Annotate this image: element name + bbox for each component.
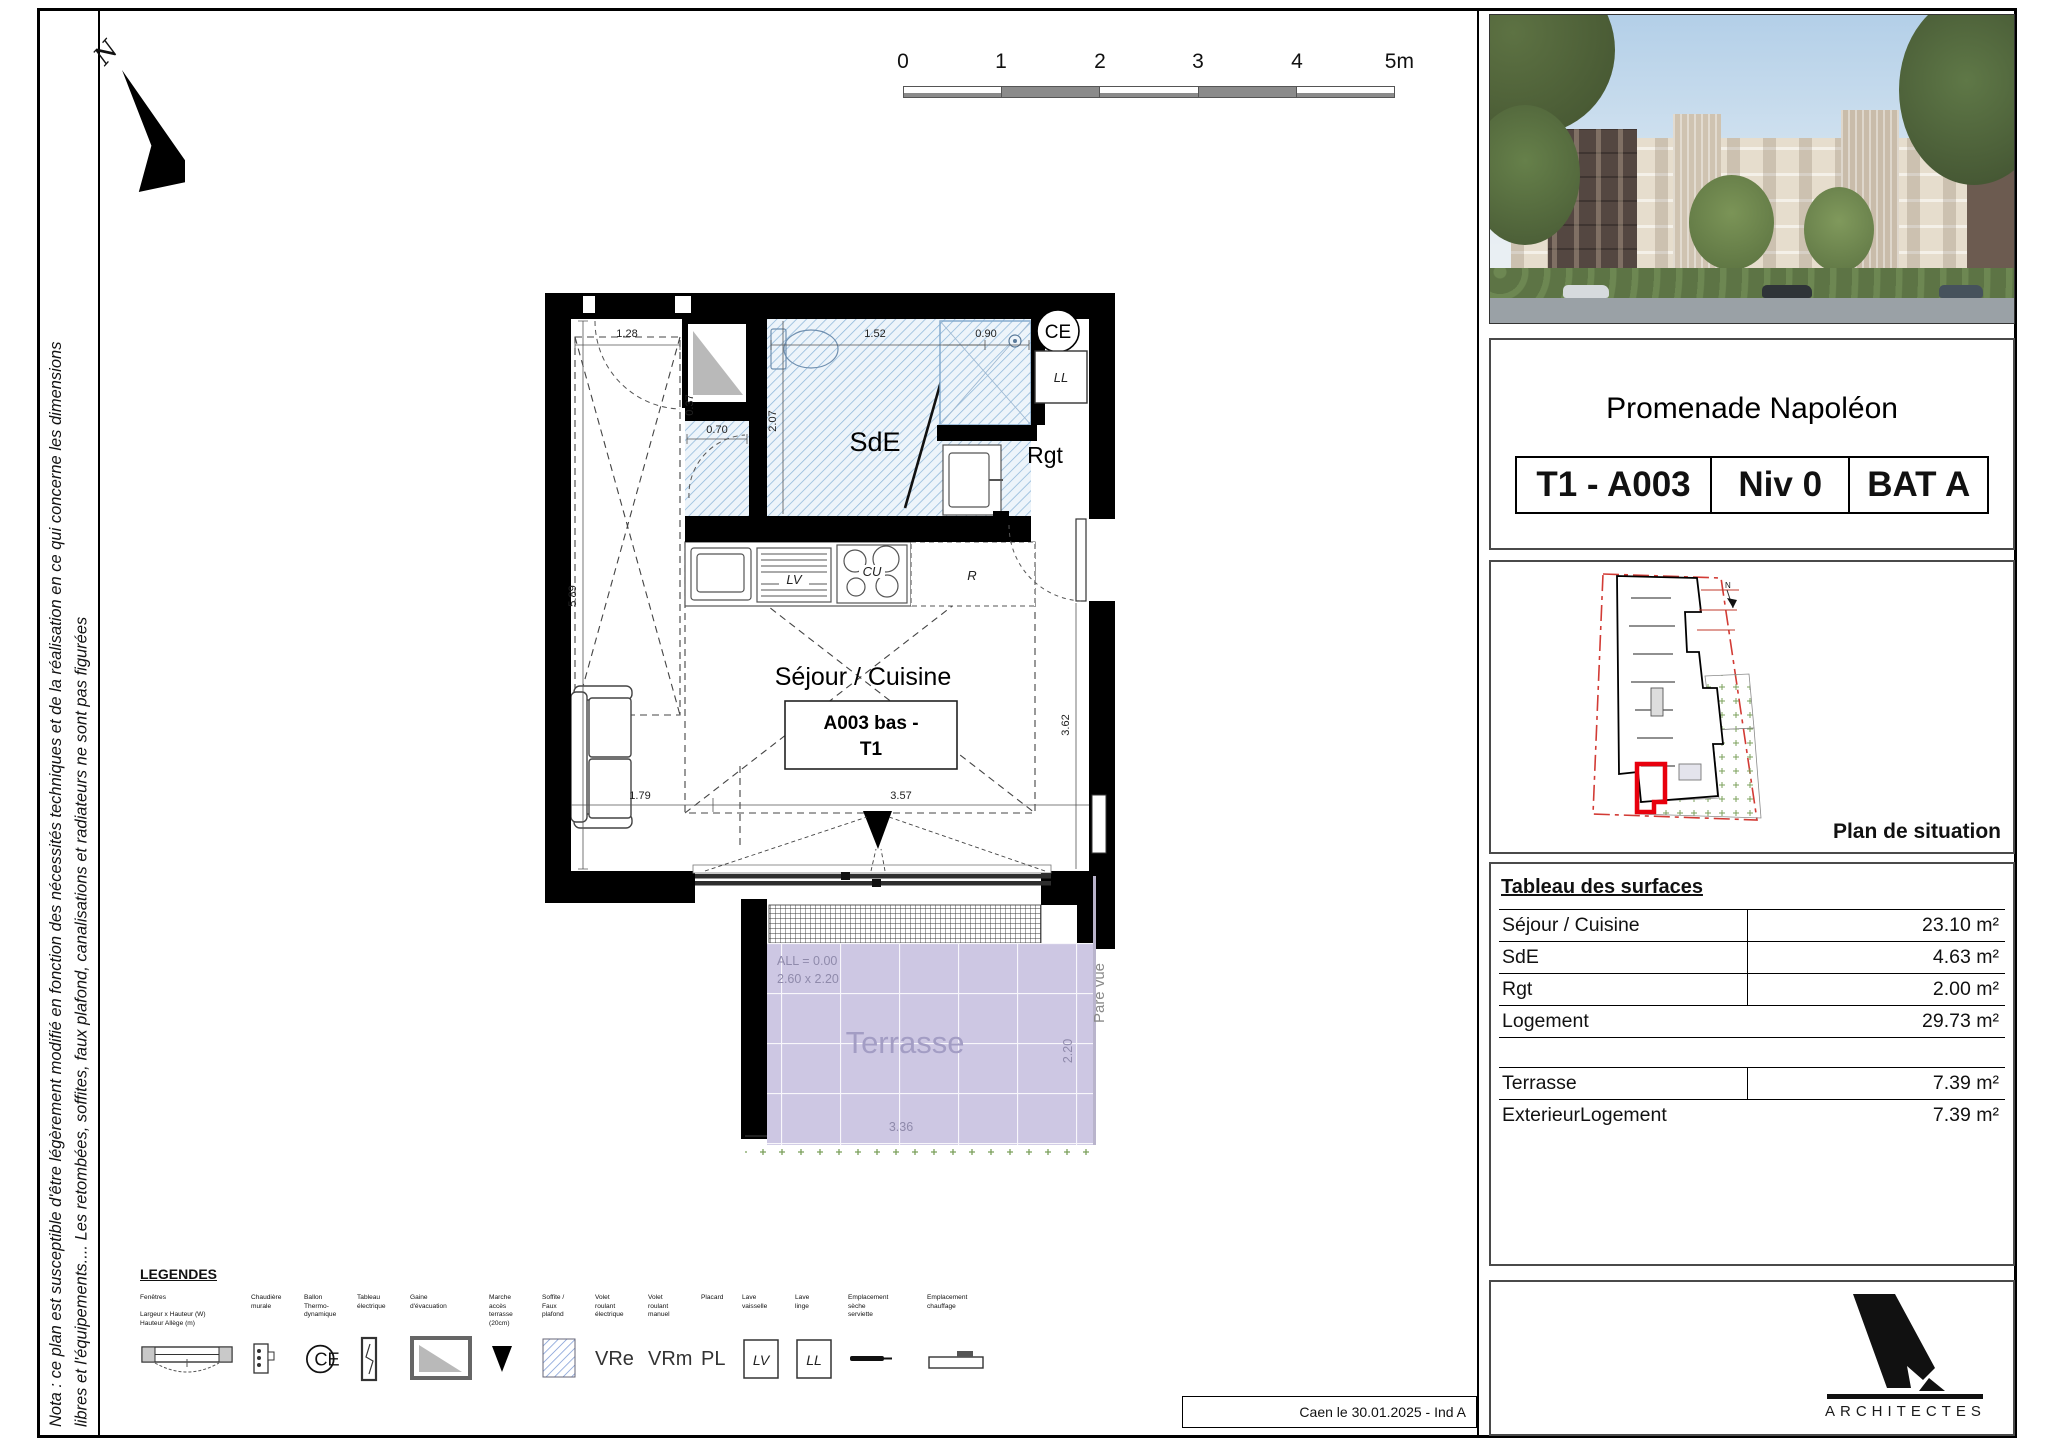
dim-right: 3.62 bbox=[1060, 714, 1072, 735]
unit-level: Niv 0 bbox=[1710, 456, 1849, 514]
photo-road bbox=[1490, 298, 2014, 323]
legend-item-vrm: Voletroulantmanuel VRm bbox=[648, 1294, 694, 1382]
legend-item-ll: Lavelinge LL bbox=[795, 1294, 841, 1382]
photo-car-1 bbox=[1563, 285, 1609, 298]
svg-text:LV: LV bbox=[753, 1352, 771, 1368]
scale-tick-0: 0 bbox=[897, 50, 909, 74]
unit-tag-line1: A003 bas - bbox=[823, 713, 918, 734]
dim-wc-depth: 0.37 bbox=[684, 394, 696, 415]
date-stamp: Caen le 30.01.2025 - Ind A bbox=[1182, 1396, 1477, 1428]
legend-item-placard: Placard PL bbox=[701, 1294, 735, 1382]
north-arrow: N bbox=[95, 38, 215, 228]
surface-row-sde: SdE 4.63 m² bbox=[1499, 942, 2005, 974]
boiler-icon bbox=[251, 1336, 297, 1382]
terrace-edge-markers bbox=[745, 1149, 1097, 1158]
photo-car-2 bbox=[1762, 285, 1812, 298]
scale-tick-1: 1 bbox=[995, 50, 1007, 74]
legend-item-tableau: Tableauélectrique bbox=[357, 1294, 403, 1382]
dishwasher-legend-icon: LV bbox=[742, 1336, 788, 1382]
surface-row-spacer bbox=[1499, 1038, 2005, 1067]
terrace-width: 3.36 bbox=[889, 1120, 913, 1134]
vrm-symbol: VRm bbox=[648, 1348, 692, 1371]
room-label-rgt: Rgt bbox=[1027, 442, 1063, 468]
surfaces-title: Tableau des surfaces bbox=[1501, 876, 2005, 899]
main-right-border bbox=[1477, 11, 1479, 1435]
logo-triangle-icon bbox=[1919, 1378, 1945, 1391]
legend-item-lv: Lavevaisselle LV bbox=[742, 1294, 788, 1382]
scale-tick-2: 2 bbox=[1094, 50, 1106, 74]
unit-building: BAT A bbox=[1848, 456, 1989, 514]
legend-title: LEGENDES bbox=[140, 1266, 840, 1282]
dim-bottom-right: 3.57 bbox=[890, 790, 911, 802]
kitchen-counter: LV CU R bbox=[685, 542, 1035, 606]
room-label-sejour: Séjour / Cuisine bbox=[775, 663, 951, 691]
room-label-sde: SdE bbox=[849, 427, 900, 457]
photo-tree-mid bbox=[1689, 175, 1774, 270]
room-label-terrasse: Terrasse bbox=[846, 1025, 965, 1060]
washing-machine-icon: LL bbox=[1035, 351, 1087, 403]
electric-panel-icon bbox=[357, 1336, 403, 1382]
unit-bar: T1 - A003 Niv 0 BAT A bbox=[1515, 456, 1989, 514]
heater-icon bbox=[927, 1336, 999, 1382]
vre-symbol: VRe bbox=[595, 1348, 634, 1371]
terrace-depth: 2.20 bbox=[1061, 1039, 1075, 1063]
nota-line-1: Nota : ce plan est susceptible d'être lé… bbox=[44, 19, 70, 1427]
cooktop-label: CU bbox=[863, 564, 882, 579]
surface-row-exterieur: ExterieurLogement 7.39 m² bbox=[1499, 1100, 2005, 1131]
plan-sheet: Nota : ce plan est susceptible d'être lé… bbox=[0, 0, 2048, 1447]
duct-icon bbox=[410, 1336, 482, 1382]
logo-pencil-icon bbox=[1853, 1294, 1935, 1388]
scale-tick-5m: 5m bbox=[1385, 50, 1414, 74]
architect-panel: ARCHITECTES bbox=[1489, 1280, 2015, 1436]
legend-item-chauffage: Emplacementchauffage bbox=[927, 1294, 999, 1382]
dim-bottom-left: 1.79 bbox=[629, 790, 650, 802]
washing-machine-label: LL bbox=[1054, 370, 1068, 385]
situation-caption: Plan de situation bbox=[1833, 820, 2001, 844]
surface-row-rgt: Rgt 2.00 m² bbox=[1499, 974, 2005, 1006]
fridge-label: R bbox=[967, 568, 976, 583]
step-icon bbox=[489, 1336, 535, 1382]
surfaces-panel: Tableau des surfaces Séjour / Cuisine 23… bbox=[1489, 862, 2015, 1266]
legend-item-fenetres: FenêtresLargeur x Hauteur (W)Hauteur All… bbox=[140, 1294, 244, 1382]
site-red-links bbox=[1697, 590, 1739, 630]
legend-item-marche: Marcheaccèsterrasse(20cm) bbox=[489, 1294, 535, 1382]
floor-plan: A003 LV CU R bbox=[545, 293, 1115, 1165]
legend: LEGENDES FenêtresLargeur x Hauteur (W)Ha… bbox=[140, 1266, 840, 1382]
legend-item-seche-serviette: Emplacementsècheserviette bbox=[848, 1294, 920, 1382]
dim-left: 5.89 bbox=[567, 585, 579, 606]
nota-column: Nota : ce plan est susceptible d'être lé… bbox=[40, 11, 100, 1435]
dim-entry: 1.28 bbox=[616, 328, 637, 340]
soffit-icon bbox=[542, 1336, 588, 1382]
dishwasher-label: LV bbox=[786, 572, 803, 587]
entry-ceiling-zone bbox=[575, 337, 680, 715]
water-heater-label: CE bbox=[1045, 322, 1071, 343]
scale-tick-4: 4 bbox=[1291, 50, 1303, 74]
situation-map: N bbox=[1491, 568, 2013, 826]
couch-icon bbox=[571, 686, 632, 828]
nota-line-2: libres et l'équipements.... Les retombée… bbox=[70, 19, 96, 1427]
legend-item-soffite: Soffite /Fauxplafond bbox=[542, 1294, 588, 1382]
svg-text:LL: LL bbox=[806, 1352, 822, 1368]
unit-tag-box: A003 bas - T1 bbox=[785, 701, 957, 769]
dim-wc-width: 0.70 bbox=[706, 424, 727, 436]
project-title: Promenade Napoléon bbox=[1491, 392, 2013, 426]
scale-tick-3: 3 bbox=[1192, 50, 1204, 74]
legend-item-gaine: Gained'évacuation bbox=[410, 1294, 482, 1382]
terrace-screen-label: Pare vue bbox=[1091, 963, 1108, 1023]
dim-shower: 0.90 bbox=[975, 328, 996, 340]
sink-vanity-icon bbox=[943, 445, 1003, 515]
architect-caption: ARCHITECTES bbox=[1825, 1403, 1985, 1420]
terrace-step-icon bbox=[863, 811, 892, 849]
gaine-evacuation bbox=[685, 321, 749, 405]
water-heater-icon: CE bbox=[1037, 310, 1079, 352]
surface-row-logement: Logement 29.73 m² bbox=[1499, 1006, 2005, 1038]
building-photo bbox=[1489, 14, 2015, 324]
legend-item-ballon: BallonThermo-dynamique CE bbox=[304, 1294, 350, 1382]
kitchen-sink-icon bbox=[691, 548, 751, 600]
legend-item-vre: Voletroulantélectrique VRe bbox=[595, 1294, 641, 1382]
pl-symbol: PL bbox=[701, 1348, 725, 1371]
title-panel: Promenade Napoléon T1 - A003 Niv 0 BAT A bbox=[1489, 338, 2015, 550]
surface-row-sejour: Séjour / Cuisine 23.10 m² bbox=[1499, 909, 2005, 942]
logo-baseline bbox=[1827, 1394, 1983, 1399]
legend-item-chaudiere: Chaudièremurale bbox=[251, 1294, 297, 1382]
window-icon bbox=[140, 1336, 244, 1382]
site-north-icon: N bbox=[1725, 581, 1737, 608]
scale-bar-segments bbox=[903, 86, 1395, 98]
unit-tag-line2: T1 bbox=[860, 739, 883, 760]
situation-panel: N Plan de situation bbox=[1489, 560, 2015, 854]
svg-text:N: N bbox=[1725, 581, 1731, 590]
photo-car-3 bbox=[1939, 285, 1983, 298]
towel-rail-icon bbox=[848, 1336, 920, 1382]
dim-sde-height: 2.07 bbox=[767, 410, 779, 431]
washer-legend-icon: LL bbox=[795, 1336, 841, 1382]
terrace-grate bbox=[769, 905, 1041, 943]
scale-bar: 0 1 2 3 4 5m bbox=[903, 50, 1395, 102]
water-heater-legend-icon: CE bbox=[304, 1336, 350, 1382]
surface-row-terrasse: Terrasse 7.39 m² bbox=[1499, 1067, 2005, 1100]
unit-type: T1 - A003 bbox=[1515, 456, 1710, 514]
terrace-bay-size: 2.60 x 2.20 bbox=[777, 972, 839, 986]
dim-sde-width: 1.52 bbox=[864, 328, 885, 340]
nota-text: Nota : ce plan est susceptible d'être lé… bbox=[44, 19, 96, 1427]
north-arrow-icon bbox=[115, 70, 185, 192]
terrace-level: ALL = 0.00 bbox=[777, 954, 837, 968]
svg-text:CE: CE bbox=[314, 1350, 339, 1370]
